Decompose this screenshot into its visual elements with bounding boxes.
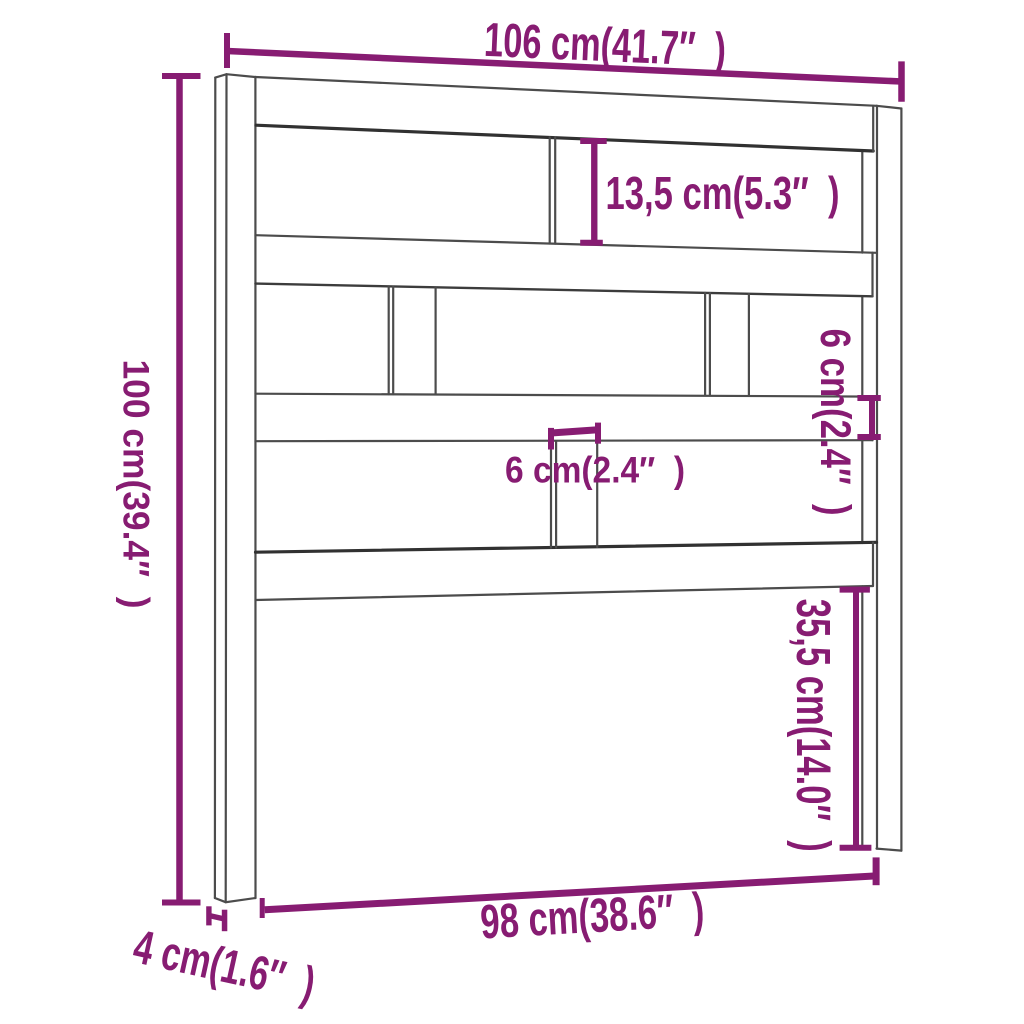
svg-text:106 cm(41.7″ ): 106 cm(41.7″ ) (483, 14, 727, 78)
svg-text:100 cm(39.4″ ): 100 cm(39.4″ ) (116, 360, 157, 609)
svg-text:6 cm(2.4″ ): 6 cm(2.4″ ) (811, 329, 859, 516)
svg-text:6 cm(2.4″ ): 6 cm(2.4″ ) (505, 450, 685, 491)
svg-text:13,5 cm(5.3″ ): 13,5 cm(5.3″ ) (606, 167, 840, 219)
svg-text:35,5 cm(14.0″ ): 35,5 cm(14.0″ ) (786, 599, 839, 852)
